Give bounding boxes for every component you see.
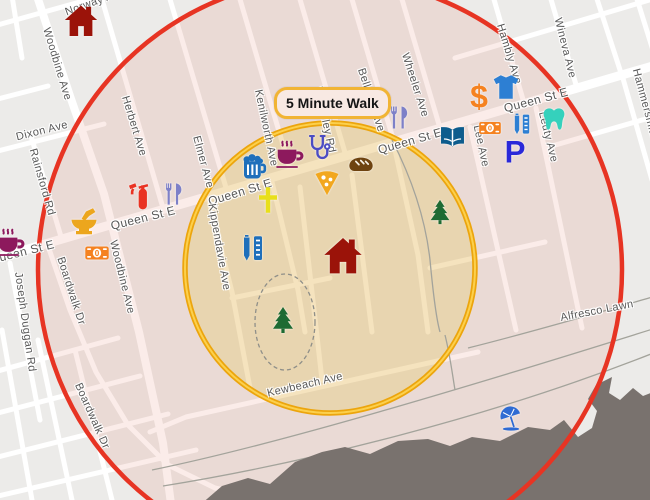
bakery-icon[interactable] bbox=[347, 150, 375, 178]
svg-text:P: P bbox=[505, 137, 526, 167]
svg-text:0: 0 bbox=[488, 124, 492, 133]
school-icon[interactable] bbox=[510, 112, 534, 136]
walk-time-badge: 5 Minute Walk bbox=[274, 87, 391, 119]
school-icon[interactable] bbox=[238, 233, 268, 263]
svg-text:$: $ bbox=[470, 81, 488, 113]
restaurant-icon[interactable] bbox=[161, 181, 187, 207]
home-icon[interactable] bbox=[62, 2, 100, 40]
home-icon[interactable] bbox=[321, 234, 365, 278]
map-canvas[interactable]: Norway AveWoodbine AveWoodbine AveDixon … bbox=[0, 0, 650, 500]
parking-icon[interactable]: P bbox=[500, 137, 530, 167]
church-icon[interactable] bbox=[253, 185, 283, 215]
bar-icon[interactable] bbox=[239, 151, 269, 181]
pharmacy-icon[interactable] bbox=[69, 207, 99, 237]
pizza-icon[interactable] bbox=[312, 167, 342, 197]
park-tree-icon[interactable] bbox=[426, 198, 454, 226]
beach-icon[interactable] bbox=[497, 404, 525, 432]
cafe-icon[interactable] bbox=[0, 227, 27, 259]
dentist-icon[interactable] bbox=[541, 106, 567, 132]
doctor-icon[interactable] bbox=[306, 133, 334, 161]
library-icon[interactable] bbox=[439, 124, 466, 151]
atm-icon[interactable]: 0 bbox=[478, 116, 502, 140]
park-tree-icon[interactable] bbox=[268, 305, 298, 335]
atm-icon[interactable]: 0 bbox=[84, 240, 110, 266]
svg-text:0: 0 bbox=[95, 249, 100, 258]
fire-station-icon[interactable] bbox=[126, 180, 158, 212]
clothing-store-icon[interactable] bbox=[491, 72, 521, 102]
cafe-icon[interactable] bbox=[274, 139, 306, 171]
